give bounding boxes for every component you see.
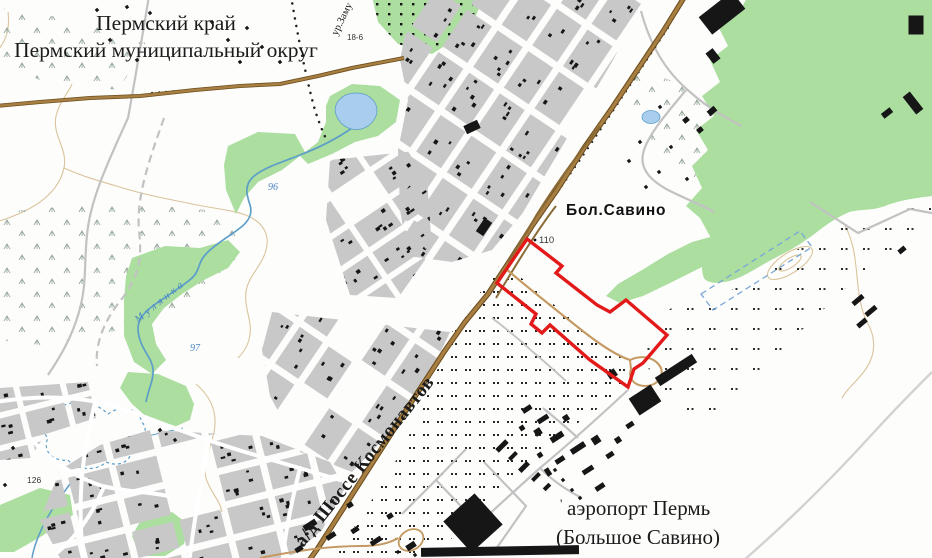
building <box>84 371 88 375</box>
tract-label: ур.Заму <box>330 0 356 37</box>
building-dot <box>125 5 130 10</box>
settlement-label: Бол.Савино <box>566 202 666 219</box>
region-label-line1: Пермский край <box>96 11 236 35</box>
building-dot <box>245 26 250 31</box>
building <box>385 303 390 308</box>
building <box>314 221 320 227</box>
building <box>0 459 1 463</box>
building <box>609 72 613 77</box>
building-dot <box>644 185 649 190</box>
building <box>406 320 411 325</box>
building <box>438 271 443 276</box>
building-dot <box>3 483 8 488</box>
building <box>385 156 391 162</box>
building <box>234 408 238 412</box>
building <box>316 312 320 316</box>
building <box>388 303 393 308</box>
building <box>612 88 616 93</box>
building <box>421 282 425 286</box>
building <box>436 318 442 324</box>
building <box>629 385 662 416</box>
building <box>264 390 269 396</box>
building <box>326 247 331 252</box>
block-cluster <box>0 360 123 479</box>
building <box>89 443 94 447</box>
building <box>36 381 39 385</box>
building-dot <box>657 170 662 175</box>
admin-boundary-dots <box>291 0 327 141</box>
elevation-110: 110 <box>539 235 554 246</box>
building <box>111 436 114 439</box>
building <box>625 421 634 430</box>
building <box>1 463 5 467</box>
building <box>582 465 595 476</box>
airport-label-line2: (Большое Савино) <box>556 525 720 549</box>
building <box>46 461 51 464</box>
building <box>399 319 403 323</box>
building <box>405 311 409 315</box>
building <box>542 195 546 199</box>
building <box>363 148 367 152</box>
building <box>25 459 30 464</box>
building-dot <box>561 478 566 483</box>
building <box>851 294 864 306</box>
building <box>605 451 614 460</box>
small-pond <box>642 111 660 124</box>
building <box>318 217 323 221</box>
building <box>371 300 376 305</box>
elevation-96: 96 <box>268 182 278 193</box>
building <box>322 226 327 230</box>
building <box>381 134 384 137</box>
building <box>897 246 906 255</box>
building <box>570 441 587 455</box>
building-dot <box>627 159 632 164</box>
building <box>543 483 551 491</box>
building <box>422 271 427 276</box>
building <box>411 284 416 289</box>
building <box>335 298 340 303</box>
topographic-map: Пермский край Пермский муниципальный окр… <box>0 0 932 558</box>
building <box>300 297 305 302</box>
building <box>239 388 243 392</box>
spot-height-dot <box>534 239 537 242</box>
map-canvas: Пермский край Пермский муниципальный окр… <box>0 0 932 558</box>
building <box>864 305 877 317</box>
building-dot <box>553 468 558 473</box>
building <box>271 434 276 439</box>
building <box>434 262 438 266</box>
building <box>248 372 253 377</box>
airport-label-line1: аэропорт Пермь <box>567 496 710 520</box>
forest-island <box>646 282 654 290</box>
building <box>296 294 301 299</box>
building <box>332 302 336 306</box>
riverside-green-1 <box>224 132 305 214</box>
elevation-97: 97 <box>190 343 201 354</box>
building <box>437 325 442 330</box>
building <box>220 426 224 430</box>
building <box>222 411 225 415</box>
building-dot <box>638 140 643 145</box>
elevation-126: 126 <box>27 475 41 485</box>
building <box>67 378 72 382</box>
building <box>909 16 924 35</box>
building <box>617 57 622 62</box>
building <box>234 374 238 378</box>
building <box>554 455 565 465</box>
building <box>127 433 130 437</box>
building <box>443 268 447 272</box>
building <box>594 482 605 492</box>
building <box>533 200 537 204</box>
building <box>449 317 454 322</box>
building <box>442 280 446 285</box>
building <box>98 370 102 374</box>
airport-symbol-tick: ' <box>560 496 562 511</box>
building <box>331 295 336 300</box>
building <box>42 470 46 474</box>
building <box>99 413 104 417</box>
building <box>558 171 562 175</box>
building <box>214 409 219 413</box>
building <box>614 436 622 444</box>
building <box>240 367 245 371</box>
region-label-line2: Пермский муниципальный округ <box>14 38 318 62</box>
riverside-green-2 <box>124 240 240 374</box>
building <box>507 232 511 236</box>
building <box>379 161 384 166</box>
building <box>431 275 435 279</box>
building <box>397 70 402 74</box>
building <box>553 161 556 165</box>
building <box>590 434 601 445</box>
building <box>411 309 415 313</box>
building <box>281 439 286 443</box>
grid-mark: 18-6 <box>347 33 364 42</box>
building <box>45 536 49 540</box>
building <box>406 287 411 291</box>
